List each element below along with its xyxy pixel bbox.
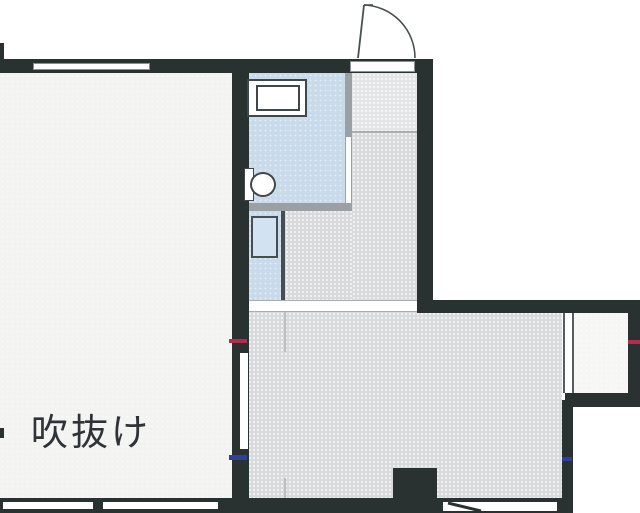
corridor-floor [352, 132, 417, 312]
toilet-bowl-icon [250, 172, 276, 197]
window-bottom-left-2 [103, 502, 218, 509]
terrace-door-bottom [443, 502, 557, 511]
corridor-wrap-floor [285, 210, 352, 312]
wall-right-upper [417, 59, 433, 313]
window-right-balcony [563, 313, 574, 393]
floor-seam [284, 312, 286, 352]
balcony-floor [574, 313, 628, 393]
threshold-band [248, 300, 420, 312]
entry-door-swing-icon [340, 0, 440, 62]
red-mark-right [628, 340, 640, 344]
entry-step-floor [352, 73, 417, 132]
window-bottom-left-1 [3, 502, 93, 509]
sink-basin-icon [256, 85, 300, 111]
entry-door-sill [350, 61, 415, 72]
washer-pan-icon [251, 216, 278, 258]
red-mark-left [229, 339, 247, 343]
blue-mark-right [562, 457, 572, 461]
terrace-door-leaf-line [443, 502, 557, 511]
pillar-duct [393, 468, 437, 498]
wall-east-right [628, 300, 640, 407]
floor-plan: 吹抜け [0, 0, 640, 513]
window-center-wall [240, 353, 248, 449]
blue-mark-left [229, 455, 247, 460]
partition-wall-horizontal [248, 203, 352, 211]
wall-east-horizontal [433, 300, 640, 313]
entry-step-line [352, 131, 417, 133]
wall-stub-top-left [0, 43, 4, 59]
toilet-room-door-opening [346, 137, 351, 203]
wall-balcony-bottom [565, 393, 640, 407]
void-room-label: 吹抜け [31, 414, 151, 451]
window-top-wall [33, 63, 150, 70]
floor-seam [284, 478, 286, 498]
wall-stub-left-edge [0, 428, 4, 438]
